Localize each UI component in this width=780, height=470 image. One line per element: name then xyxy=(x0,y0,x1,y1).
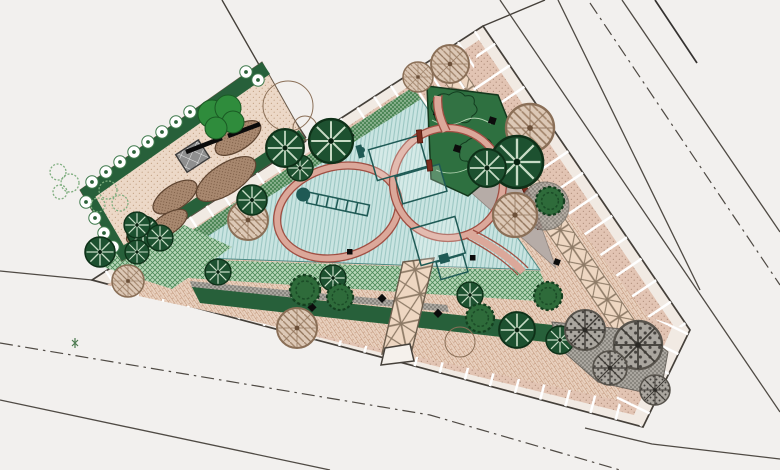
post-symbol xyxy=(347,249,353,255)
conifer-tree xyxy=(468,149,506,187)
gravel-tree xyxy=(593,351,627,385)
site-plan-canvas xyxy=(0,0,780,470)
conifer-tree xyxy=(125,240,149,264)
canopy-tree xyxy=(277,308,317,348)
conifer-tree xyxy=(266,129,304,167)
canopy-tree xyxy=(493,193,537,237)
gravel-tree xyxy=(565,310,605,350)
shrub xyxy=(534,282,562,310)
shrub xyxy=(466,304,494,332)
shrub xyxy=(290,275,320,305)
shrub xyxy=(327,284,353,310)
conifer-tree xyxy=(124,212,150,238)
conifer-tree xyxy=(85,237,115,267)
conifer-tree xyxy=(499,312,535,348)
canopy-tree xyxy=(431,45,469,83)
entrance-apron xyxy=(381,344,414,365)
conifer-tree xyxy=(309,119,353,163)
gravel-tree xyxy=(640,375,670,405)
conifer-tree xyxy=(205,259,231,285)
shrub xyxy=(536,187,564,215)
canopy-tree xyxy=(403,62,433,92)
conifer-tree xyxy=(237,185,267,215)
conifer-tree xyxy=(147,225,173,251)
play-element xyxy=(359,147,365,153)
post-symbol xyxy=(470,255,476,261)
canopy-tree xyxy=(112,265,144,297)
